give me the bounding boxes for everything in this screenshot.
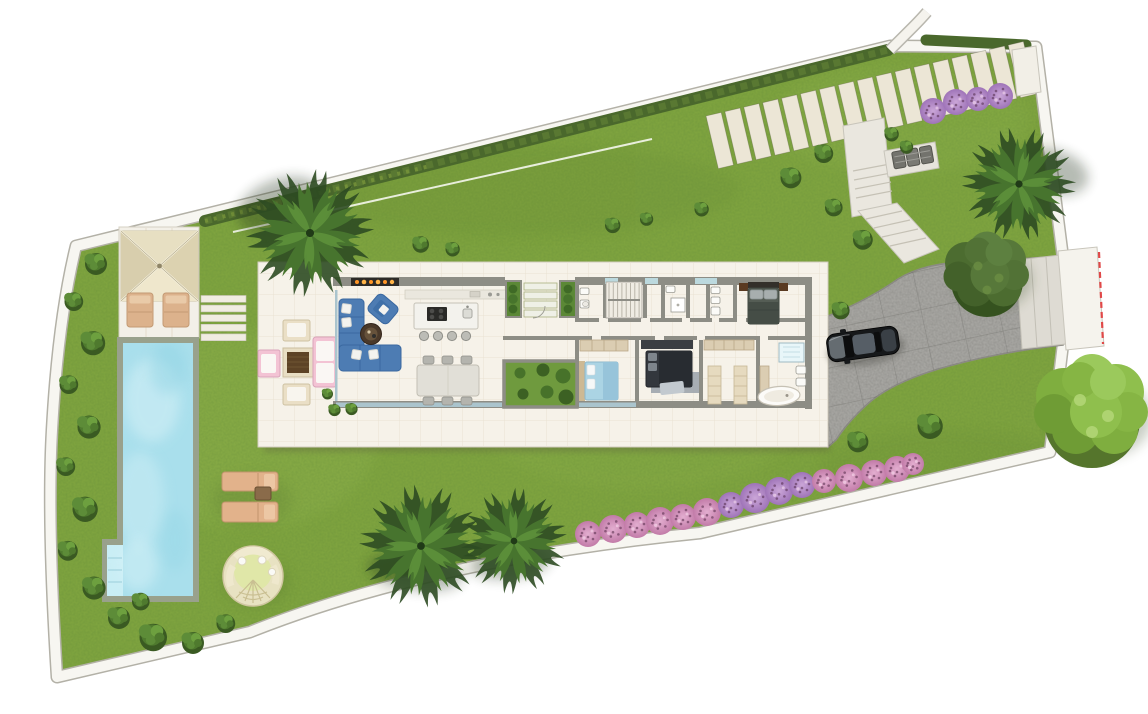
bathroom-3 [711,287,720,315]
pink-flower-bush [812,469,836,493]
stepping-tread [201,324,246,331]
stepping-tread [201,334,246,341]
stepping-tread [201,305,246,312]
courtyard-bush [537,364,550,377]
pink-flower-bush [902,453,924,475]
pink-flower-bush [624,512,650,538]
corner-pad [1012,46,1041,96]
pink-flower-bush [693,498,721,526]
pink-flower-bush [599,515,627,543]
dining-chair [423,356,434,364]
inner-courtyard [504,361,577,407]
violet-flower-bush [987,83,1013,109]
house [258,262,830,452]
dining-chair [423,397,434,405]
glass-wall-west [335,290,338,402]
pergola [121,231,198,301]
courtyard-bush [559,390,574,405]
dining-chair [461,397,472,405]
front-entry [505,280,577,318]
violet-flower-bush [966,87,990,111]
pink-flower-bush [575,521,601,547]
interior-stairs [606,282,642,318]
courtyard-bush [541,386,554,399]
violet-flower-bush [920,98,946,124]
kitchen-island [414,303,478,329]
courtyard-bush [556,369,571,384]
bar-stool [461,331,470,340]
cooktop [427,307,447,321]
kitchen-counter [405,290,509,299]
violet-flower-bush [765,477,793,505]
stepping-tread [201,315,246,322]
entrance-gate [1058,247,1104,350]
dining-area [417,356,479,405]
car-roof [852,332,877,355]
pink-flower-bush [670,504,696,530]
bar-stool [419,331,428,340]
courtyard-bush [518,389,529,400]
pink-flower-bush [646,507,674,535]
dining-chair [461,356,472,364]
pink-flower-bush [835,464,863,492]
island-sink [463,309,472,318]
violet-flower-bush [718,492,744,518]
bar-stool [433,331,442,340]
violet-flower-bush [943,89,969,115]
glass-wall-south [336,403,502,408]
throw-blanket [659,381,684,395]
pink-flower-bush [861,460,887,486]
violet-flower-bush [789,472,815,498]
site-plan-image [0,0,1148,714]
stepping-treads [201,296,246,341]
stepping-tread [201,296,246,303]
side-table [255,487,271,500]
bedroom-3 [641,340,699,395]
dining-chair [442,356,453,364]
site-plan-svg [0,0,1148,714]
dining-chair [442,397,453,405]
bar-stool [447,331,456,340]
headboard [748,282,779,288]
courtyard-bush [515,368,526,379]
